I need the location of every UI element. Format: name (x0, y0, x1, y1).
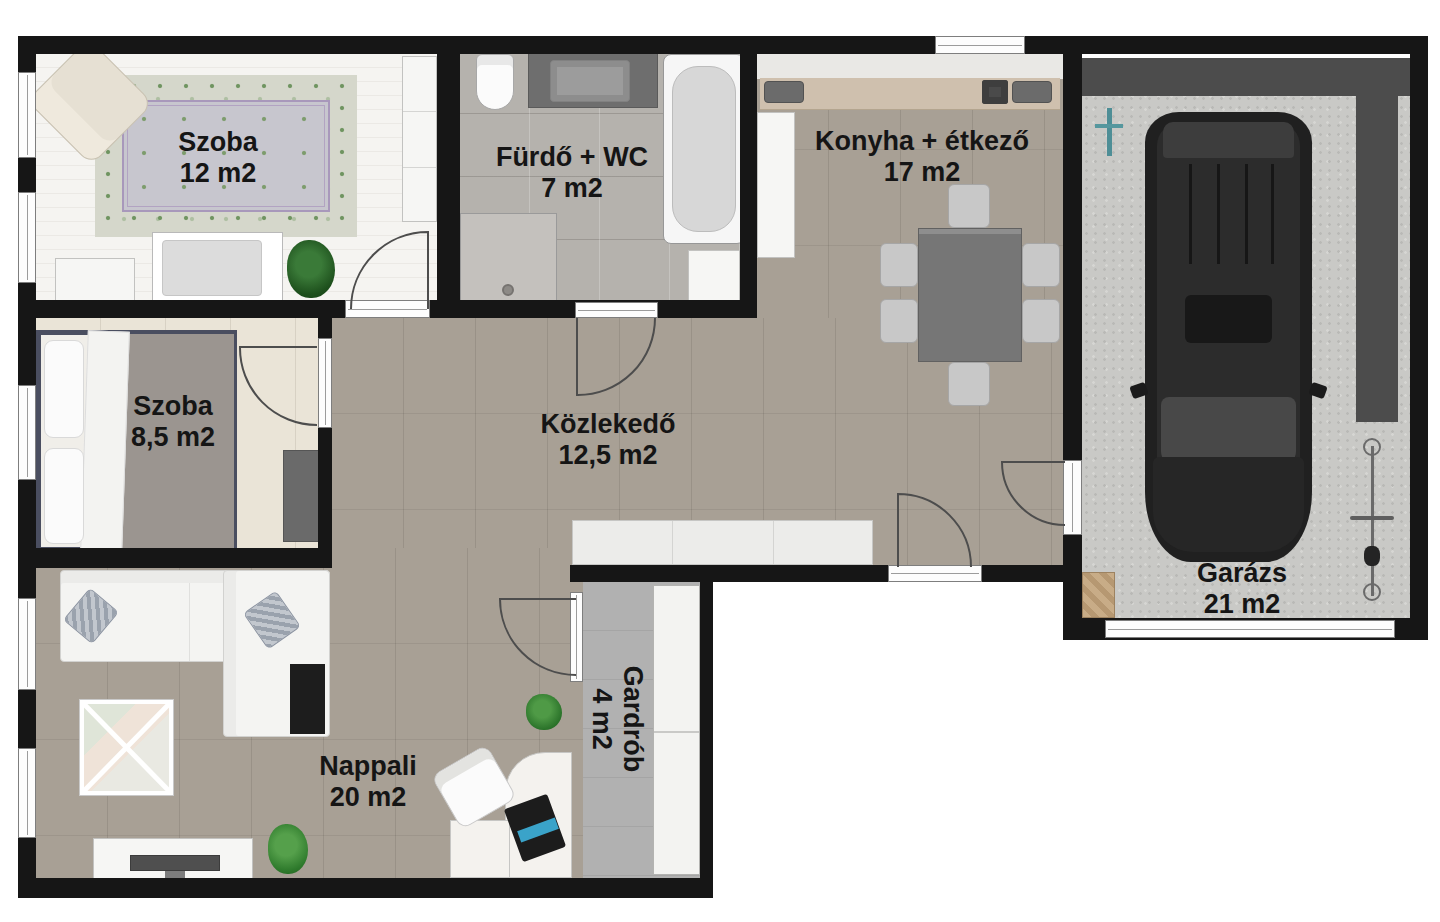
room-label-szoba12: Szoba 12 m2 (178, 127, 258, 188)
room-area: 12,5 m2 (540, 439, 675, 470)
room-label-nappali: Nappali 20 m2 (319, 751, 417, 812)
room-label-kozlekedo: Közlekedő 12,5 m2 (540, 409, 675, 470)
room-name: Nappali (319, 751, 417, 782)
door-swing-bedroom-small (240, 347, 317, 425)
floor-plan: Szoba 12 m2 Fürdő + WC 7 m2 Konyha + étk… (0, 0, 1440, 922)
room-area: 8,5 m2 (131, 421, 215, 452)
room-label-gardrob: Gardrób 4 m2 (587, 666, 648, 773)
room-area: 4 m2 (587, 666, 618, 773)
door-swing-bedroom-large (351, 232, 428, 309)
door-swing-entrance (898, 494, 971, 567)
room-area: 7 m2 (496, 172, 648, 203)
room-name: Konyha + étkező (815, 126, 1029, 157)
coffee-table-cross (82, 702, 171, 793)
room-label-garazs: Garázs 21 m2 (1197, 558, 1287, 619)
door-swing-bathroom (577, 318, 655, 395)
room-name: Garázs (1197, 558, 1287, 589)
room-area: 12 m2 (178, 157, 258, 188)
room-label-furdo: Fürdő + WC 7 m2 (496, 142, 648, 203)
room-area: 21 m2 (1197, 588, 1287, 619)
room-name: Közlekedő (540, 409, 675, 440)
room-label-szoba85: Szoba 8,5 m2 (131, 391, 215, 452)
room-name: Gardrób (617, 666, 648, 773)
room-name: Szoba (178, 127, 258, 158)
room-area: 17 m2 (815, 156, 1029, 187)
room-name: Szoba (131, 391, 215, 422)
door-swing-wardrobe (500, 599, 576, 675)
room-label-konyha: Konyha + étkező 17 m2 (815, 126, 1029, 187)
door-swing-garage (1002, 462, 1065, 525)
room-name: Fürdő + WC (496, 142, 648, 173)
room-area: 20 m2 (319, 781, 417, 812)
